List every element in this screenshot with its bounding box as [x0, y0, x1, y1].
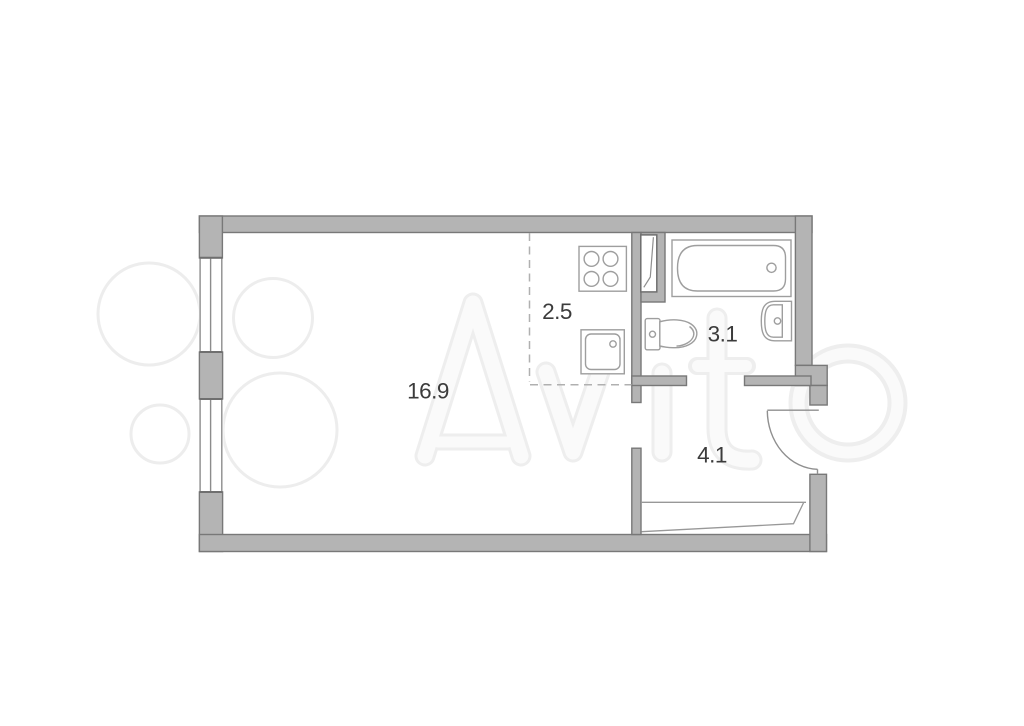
- svg-text:4.1: 4.1: [697, 443, 727, 468]
- svg-text:3.1: 3.1: [708, 321, 738, 346]
- svg-text:16.9: 16.9: [407, 379, 449, 404]
- svg-text:2.5: 2.5: [542, 299, 572, 324]
